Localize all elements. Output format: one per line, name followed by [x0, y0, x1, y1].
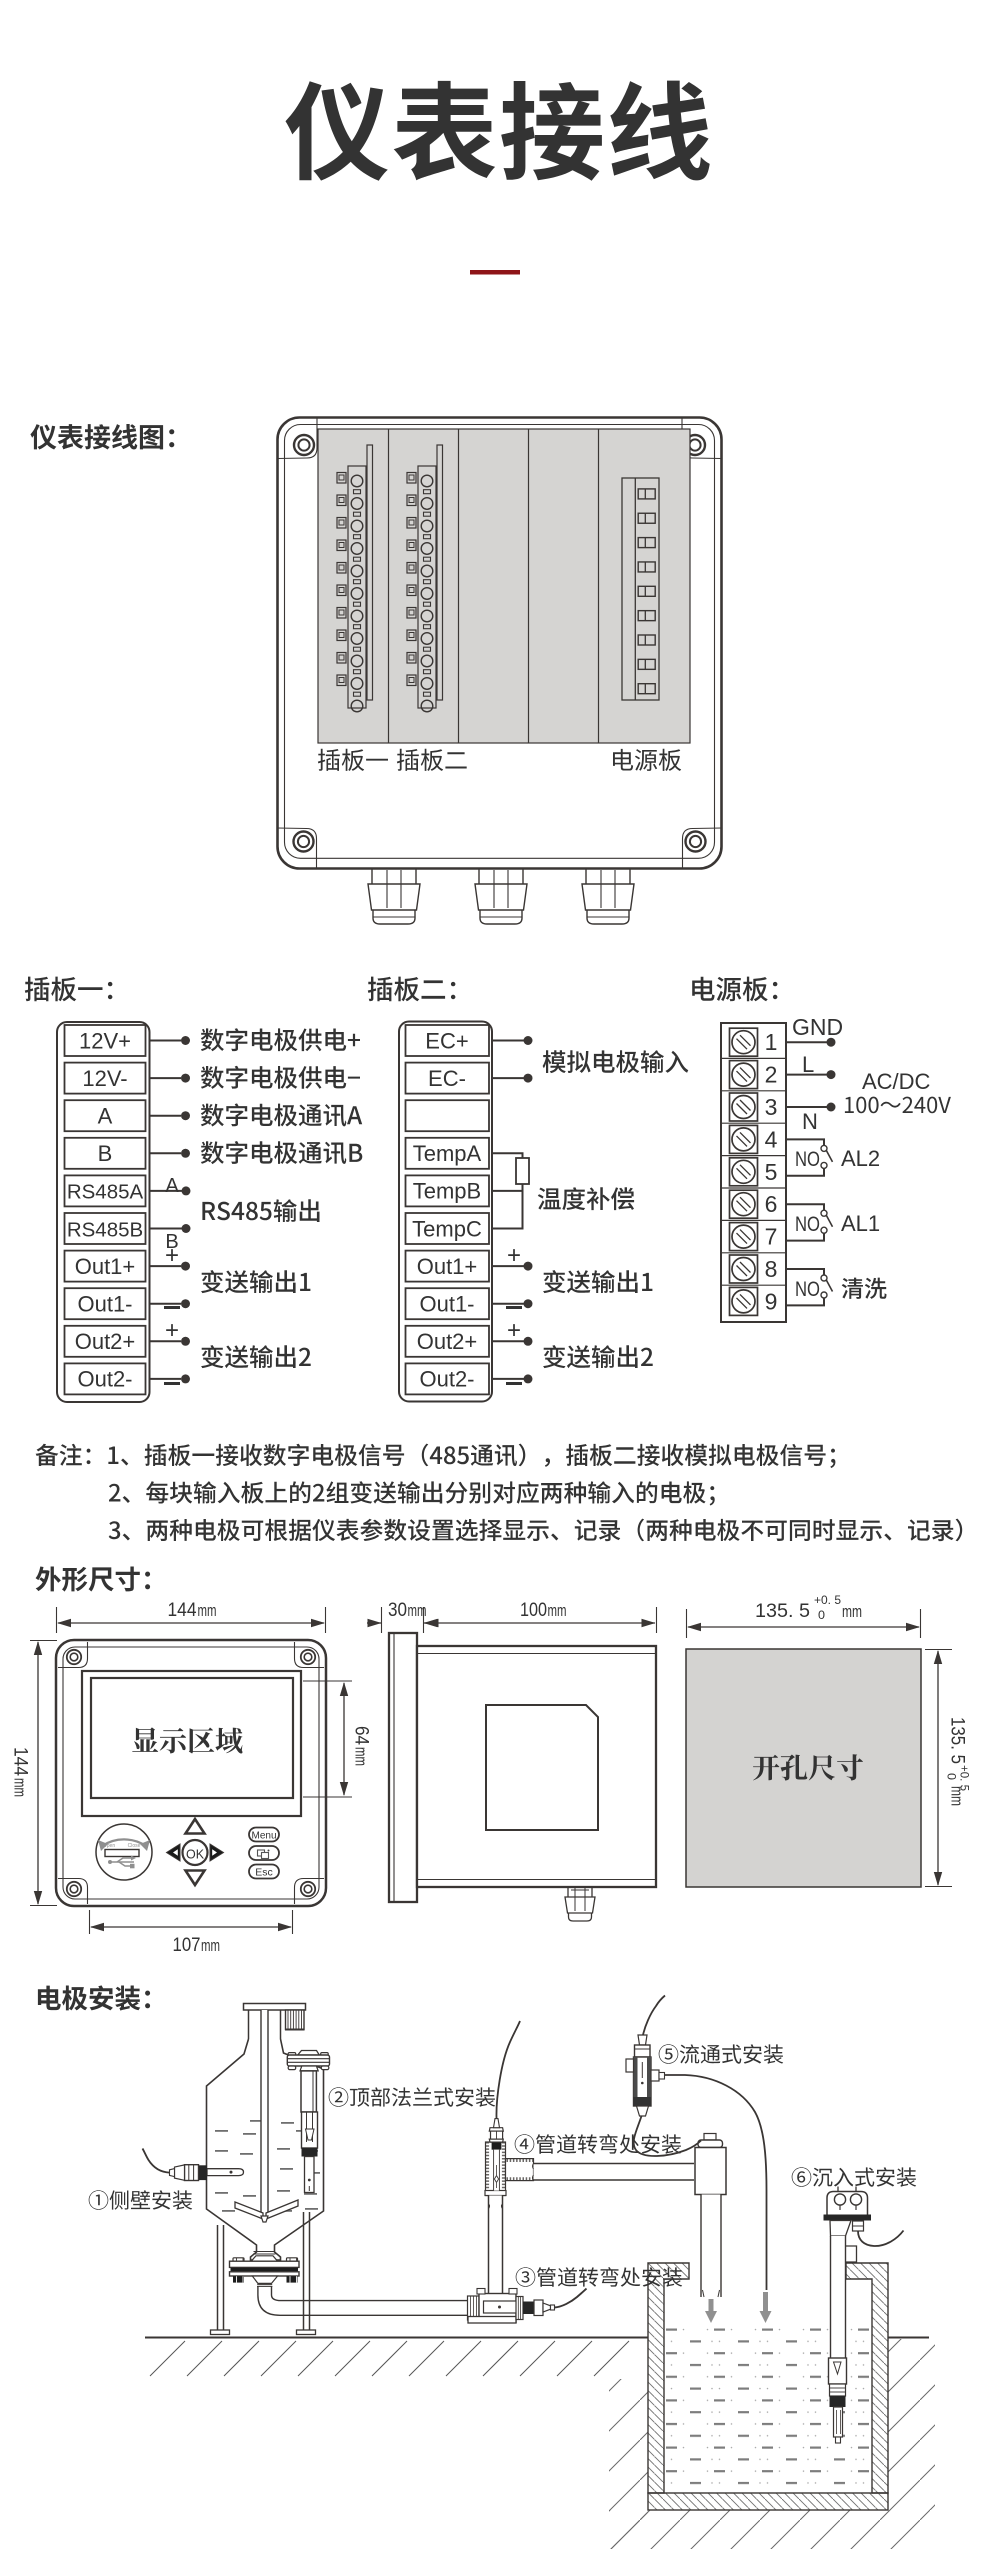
svg-text:3: 3: [765, 1094, 778, 1120]
svg-text:NO: NO: [795, 1148, 820, 1171]
svg-text:100: 100: [520, 1599, 547, 1621]
svg-text:B: B: [98, 1141, 113, 1166]
svg-text:Open: Open: [103, 1843, 115, 1849]
svg-text:Out2+: Out2+: [417, 1329, 478, 1354]
svg-text:RS485B: RS485B: [67, 1218, 143, 1241]
svg-text:30: 30: [388, 1599, 407, 1621]
svg-text:A: A: [98, 1104, 113, 1129]
svg-text:8: 8: [765, 1256, 778, 1282]
svg-text:RS485A: RS485A: [67, 1181, 144, 1204]
svg-text:L: L: [802, 1052, 814, 1077]
svg-text:mm: mm: [948, 1786, 967, 1806]
svg-text:TempA: TempA: [413, 1141, 482, 1166]
svg-text:Esc: Esc: [255, 1867, 273, 1879]
svg-text:mm: mm: [352, 1747, 371, 1766]
svg-text:Out1-: Out1-: [419, 1292, 474, 1317]
svg-text:mm: mm: [842, 1602, 862, 1621]
svg-text:TempB: TempB: [413, 1179, 481, 1204]
svg-text:Out1+: Out1+: [417, 1254, 478, 1279]
svg-text:NO: NO: [795, 1213, 820, 1236]
svg-text:135. 5: 135. 5: [947, 1717, 969, 1764]
svg-text:OK: OK: [186, 1848, 205, 1862]
svg-text:EC-: EC-: [428, 1066, 466, 1091]
svg-text:AL2: AL2: [841, 1146, 880, 1171]
svg-text:135. 5: 135. 5: [755, 1600, 810, 1622]
svg-text:64: 64: [351, 1726, 373, 1745]
svg-text:Out2-: Out2-: [419, 1367, 474, 1392]
svg-text:mm: mm: [408, 1601, 427, 1620]
svg-text:7: 7: [765, 1224, 778, 1250]
svg-text:2: 2: [765, 1062, 778, 1088]
svg-text:0: 0: [945, 1773, 959, 1780]
svg-text:107: 107: [173, 1934, 201, 1956]
svg-text:Close: Close: [128, 1843, 141, 1849]
svg-text:6: 6: [765, 1191, 778, 1217]
svg-text:AL1: AL1: [841, 1211, 880, 1236]
svg-text:+: +: [507, 1242, 521, 1269]
svg-text:Menu: Menu: [251, 1831, 276, 1842]
svg-text:+: +: [165, 1242, 179, 1269]
svg-text:12V-: 12V-: [82, 1066, 127, 1091]
svg-text:A: A: [165, 1175, 179, 1197]
svg-text:+: +: [507, 1317, 521, 1344]
svg-text:mm: mm: [201, 1936, 220, 1955]
svg-text:1: 1: [765, 1029, 778, 1055]
svg-text:NO: NO: [795, 1278, 820, 1301]
svg-text:N: N: [802, 1109, 818, 1134]
svg-text:4: 4: [765, 1126, 778, 1152]
svg-text:mm: mm: [198, 1601, 217, 1620]
svg-text:144: 144: [168, 1599, 197, 1621]
svg-text:EC+: EC+: [425, 1028, 468, 1053]
svg-text:Out1+: Out1+: [75, 1254, 136, 1279]
svg-text:AC/DC: AC/DC: [862, 1069, 931, 1094]
svg-text:GND: GND: [792, 1014, 843, 1040]
svg-text:5: 5: [765, 1159, 778, 1185]
svg-text:TempC: TempC: [412, 1216, 482, 1241]
svg-text:Out1-: Out1-: [77, 1292, 132, 1317]
svg-text:0: 0: [818, 1608, 825, 1622]
svg-text:9: 9: [765, 1288, 778, 1314]
svg-text:Out2-: Out2-: [77, 1367, 132, 1392]
svg-text:+0. 5: +0. 5: [814, 1593, 841, 1607]
svg-text:mm: mm: [11, 1778, 30, 1797]
svg-text:144: 144: [10, 1747, 32, 1776]
svg-text:Out2+: Out2+: [75, 1329, 136, 1354]
svg-text:mm: mm: [548, 1601, 567, 1620]
svg-text:12V+: 12V+: [79, 1028, 131, 1053]
svg-text:+: +: [165, 1317, 179, 1344]
